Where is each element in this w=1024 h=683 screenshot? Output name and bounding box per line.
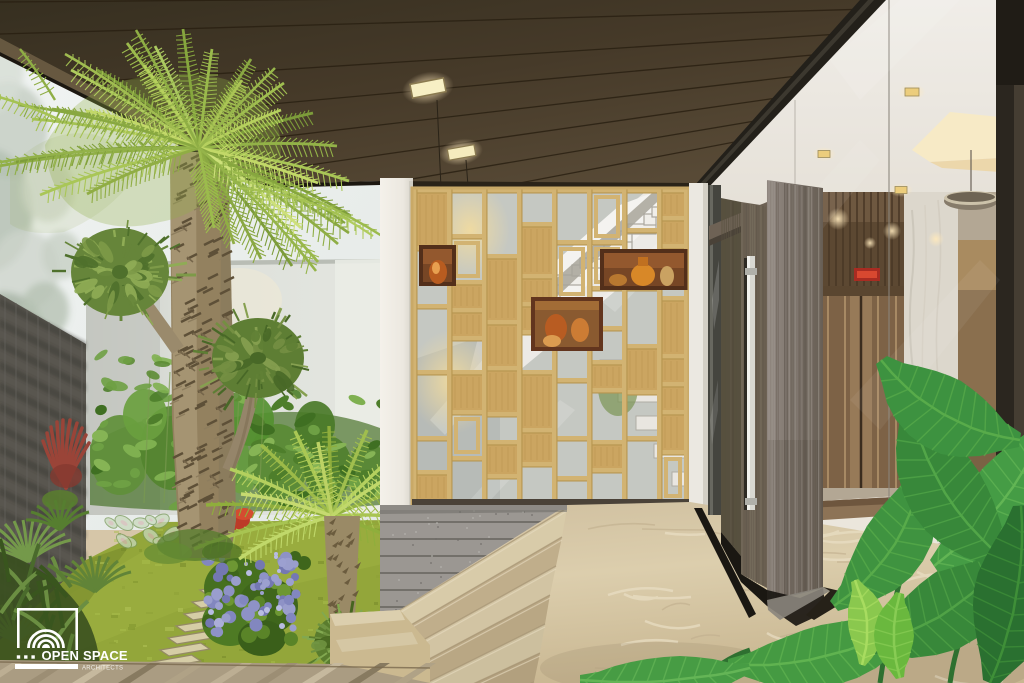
svg-text:OPEN SPACE: OPEN SPACE <box>42 648 128 663</box>
svg-text:ARCHITECTS: ARCHITECTS <box>82 666 123 672</box>
